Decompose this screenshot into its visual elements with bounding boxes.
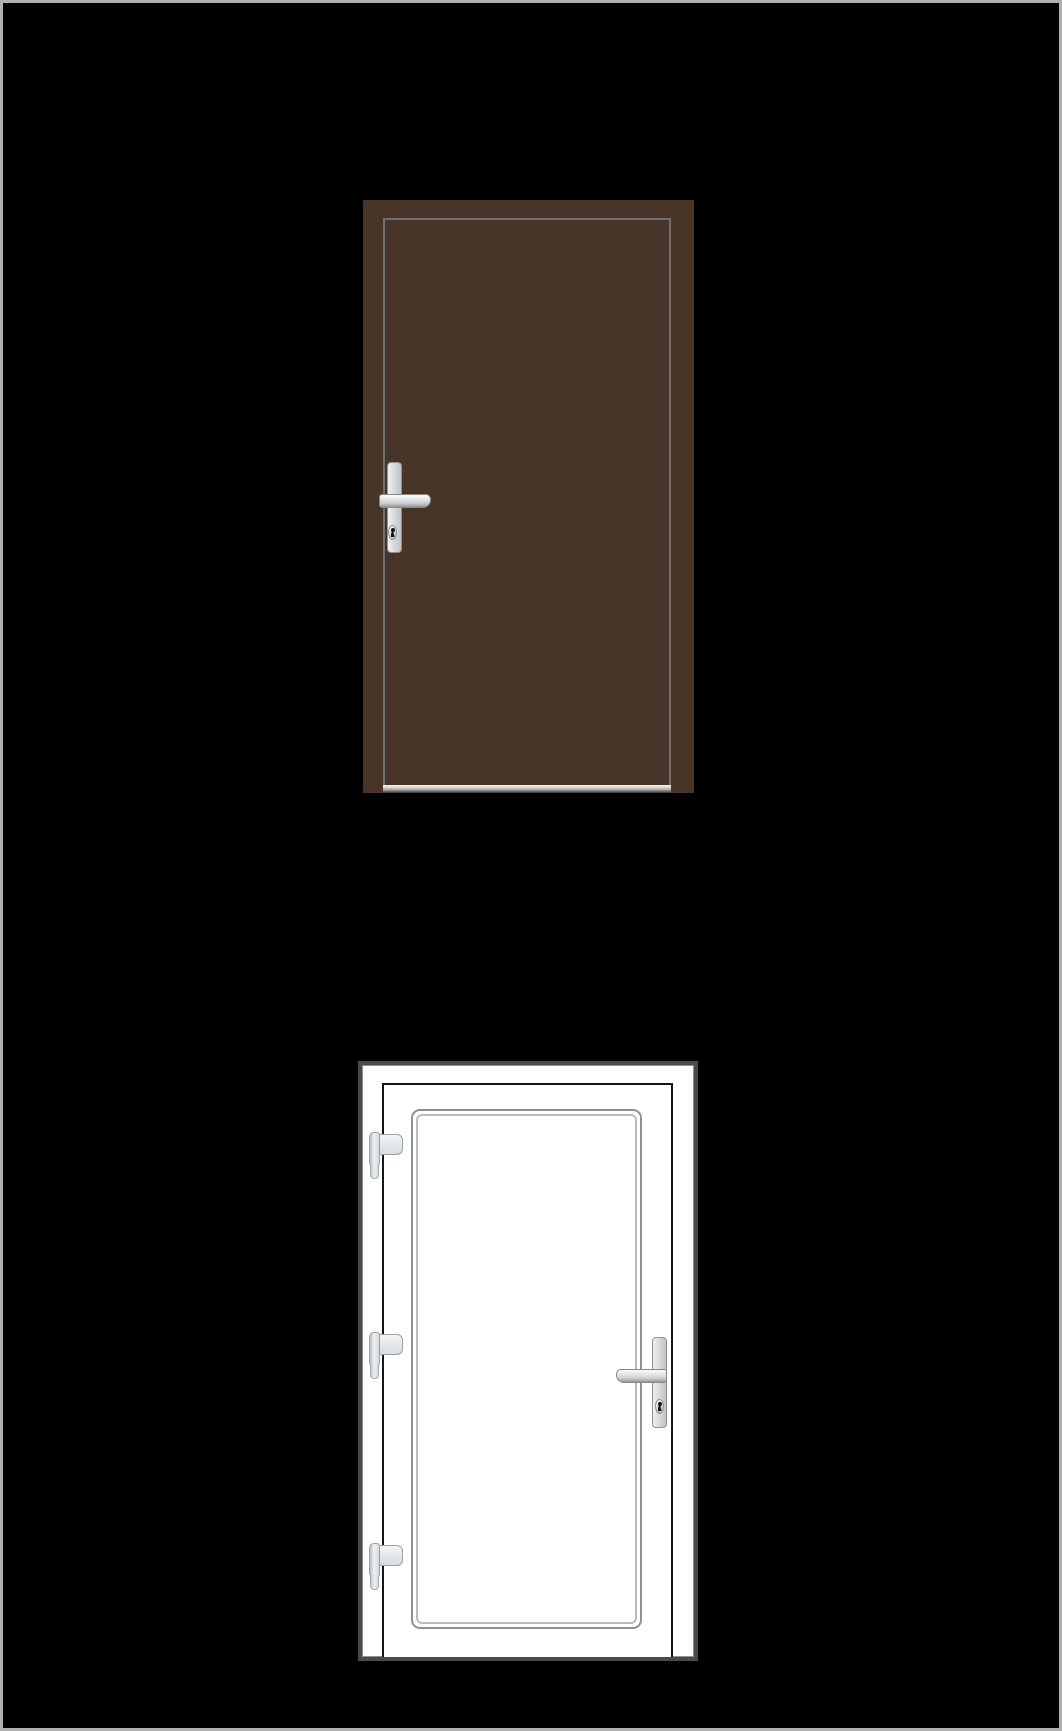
- door-threshold: [383, 785, 671, 793]
- hinge-flap: [378, 1134, 403, 1155]
- hinge-bottom: [369, 1543, 410, 1591]
- glazing-panel-outer: [411, 1109, 642, 1629]
- glazing-panel-inner: [416, 1114, 637, 1624]
- page-canvas: [0, 0, 1062, 1731]
- hinge-flap: [378, 1334, 403, 1355]
- hinge-foot: [370, 1164, 379, 1179]
- hinge-middle: [369, 1332, 410, 1380]
- hinge-barrel: [369, 1332, 380, 1366]
- hinge-top: [369, 1132, 410, 1180]
- hinge-flap: [378, 1545, 403, 1566]
- door-preview-brown: [363, 200, 694, 793]
- handle-lever: [379, 494, 431, 508]
- hinge-barrel: [369, 1132, 380, 1166]
- door-preview-white: [358, 1061, 698, 1661]
- hinge-barrel: [369, 1543, 380, 1577]
- hinge-foot: [370, 1364, 379, 1379]
- hinge-foot: [370, 1575, 379, 1590]
- handle-lever: [616, 1369, 667, 1383]
